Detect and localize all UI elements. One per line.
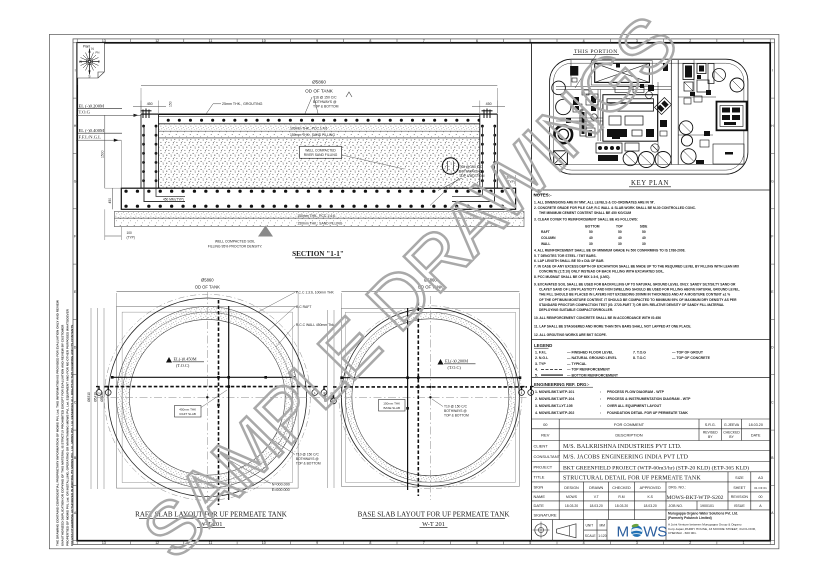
svg-text:REV: REV <box>541 433 550 438</box>
svg-text:7. T.O.G: 7. T.O.G <box>633 351 646 355</box>
svg-text:BY: BY <box>708 435 713 439</box>
svg-text:5.: 5. <box>535 373 538 377</box>
svg-text:DEPLOYING SUITABLE COMPACTOR/R: DEPLOYING SUITABLE COMPACTOR/ROLLER. <box>539 308 613 312</box>
svg-text:BY: BY <box>729 435 734 439</box>
svg-text:SIZE: SIZE <box>735 476 744 480</box>
svg-text:G.JEEVA: G.JEEVA <box>724 423 740 427</box>
svg-text:9: 9 <box>316 541 318 545</box>
svg-text:2. N.G.L: 2. N.G.L <box>535 356 549 360</box>
svg-text:18.03.20: 18.03.20 <box>615 504 628 508</box>
svg-text:ENGINEERING REF. DRG:-: ENGINEERING REF. DRG:- <box>534 382 590 387</box>
svg-text:OD OF TANK: OD OF TANK <box>305 89 334 94</box>
svg-text:(T.O.C): (T.O.C) <box>448 365 462 370</box>
svg-text:Ø5860: Ø5860 <box>201 278 214 283</box>
svg-text:Ø6310: Ø6310 <box>87 392 91 402</box>
svg-text:W: W <box>79 60 82 64</box>
svg-text:BOTHWAYS @: BOTHWAYS @ <box>313 100 337 104</box>
svg-text:3: 3 <box>636 541 638 545</box>
svg-text:TOP: TOP <box>616 225 624 229</box>
svg-text:STANDARD PROCTOR COMPACTION TE: STANDARD PROCTOR COMPACTION TEST (IS: 27… <box>539 303 724 307</box>
svg-text:T.O.G: T.O.G <box>79 110 91 115</box>
svg-text:5. T DENOTES TOR STEEL / TMT B: 5. T DENOTES TOR STEEL / TMT BARS. <box>534 254 597 258</box>
svg-text:CLAYEY SAND OF LOW PLASTICITY: CLAYEY SAND OF LOW PLASTICITY AND NON SW… <box>539 288 740 292</box>
svg-text:150mm THK., SAND FILLING: 150mm THK., SAND FILLING <box>297 222 342 226</box>
svg-text:12. ALL GROUTING WORKS ARE BKT: 12. ALL GROUTING WORKS ARE BKT SCOPE. <box>534 333 607 337</box>
svg-text:5: 5 <box>529 39 531 43</box>
svg-text:PROCESS & INSTRUMENTATION DIAG: PROCESS & INSTRUMENTATION DIAGRAM - WTP <box>607 397 691 401</box>
svg-text:00: 00 <box>759 495 763 499</box>
svg-text:50: 50 <box>618 230 622 234</box>
svg-text:7. IN CASE OF ANY EXCESS DEPTH: 7. IN CASE OF ANY EXCESS DEPTH OF EXCAVA… <box>534 264 740 268</box>
svg-text:REVISION: REVISION <box>731 495 749 499</box>
svg-text:4. ALL REINFORCEMENT SHALL BE: 4. ALL REINFORCEMENT SHALL BE OF MINIMUM… <box>534 249 685 253</box>
svg-text:40: 40 <box>618 236 622 240</box>
svg-text:450 MM (TYP): 450 MM (TYP) <box>163 198 184 202</box>
svg-text:TOP & BOTTOM: TOP & BOTTOM <box>296 462 321 466</box>
svg-text:UNAUTHORIZED DUPLICATION OR CO: UNAUTHORIZED DUPLICATION OR COPYING OF T… <box>60 324 64 546</box>
svg-text:EL(-)0.450M: EL(-)0.450M <box>174 357 197 362</box>
svg-text:SECTION "1-1": SECTION "1-1" <box>292 250 344 258</box>
svg-text:8: 8 <box>369 541 371 545</box>
svg-text:50: 50 <box>589 230 593 234</box>
svg-text:40: 40 <box>589 236 593 240</box>
svg-text:DRG. NO.:: DRG. NO.: <box>669 486 686 490</box>
svg-text:— NATURAL GROUND LEVEL: — NATURAL GROUND LEVEL <box>567 356 618 360</box>
svg-text:STRUCTURAL DETAIL FOR UF P: STRUCTURAL DETAIL FOR UF PERMEATE TANK <box>563 476 701 482</box>
svg-text:A3: A3 <box>758 476 763 480</box>
svg-text:APPROVED: APPROVED <box>640 486 661 490</box>
svg-text:8. T.O.C: 8. T.O.C <box>633 356 646 360</box>
svg-text:40: 40 <box>642 236 646 240</box>
svg-text:100mm THK., PCC 1:4:6: 100mm THK., PCC 1:4:6 <box>297 214 335 218</box>
svg-text:(TYP): (TYP) <box>127 236 135 240</box>
svg-text:(Formerly Polutech Limited): (Formerly Polutech Limited) <box>668 516 712 520</box>
svg-text:Plant: Plant <box>83 45 90 49</box>
svg-text:SCALE: SCALE <box>585 534 597 538</box>
svg-text:150: 150 <box>169 101 173 107</box>
svg-text:Ø5860: Ø5860 <box>312 80 326 85</box>
svg-text:CHENNAI - 600 001.: CHENNAI - 600 001. <box>668 531 697 535</box>
svg-text:K.S: K.S <box>647 495 653 499</box>
svg-text:R.M: R.M <box>618 495 624 499</box>
svg-text:W-T 201: W-T 201 <box>422 521 445 528</box>
svg-text:6. LAP LENGTH SHALL BE 50 x DI: 6. LAP LENGTH SHALL BE 50 x DIA OF BAR. <box>534 259 604 263</box>
svg-text:DRAWN: DRAWN <box>589 486 603 490</box>
svg-text:E=000.000: E=000.000 <box>272 488 290 492</box>
svg-text:S.R.G.: S.R.G. <box>705 423 716 427</box>
svg-text:PROPERTIES OF MOWS PVL Ltd. OR: PROPERTIES OF MOWS PVL Ltd. OR INSTALLIN… <box>65 308 69 546</box>
svg-text:10: 10 <box>262 39 266 43</box>
svg-text:4: 4 <box>583 39 585 43</box>
svg-text:CHECKED: CHECKED <box>612 486 631 490</box>
svg-text:FOUNDATION DETAIL FOR UF PERME: FOUNDATION DETAIL FOR UF PERMEATE TANK <box>607 411 688 415</box>
svg-text:13: 13 <box>102 39 106 43</box>
svg-text:FILLING 95% PROCTOR DENSITY.: FILLING 95% PROCTOR DENSITY. <box>208 245 263 249</box>
svg-text:BOTTOM: BOTTOM <box>585 225 599 229</box>
svg-text:2: 2 <box>689 39 691 43</box>
svg-text:100mm THK., PCC 1:4:6: 100mm THK., PCC 1:4:6 <box>290 126 328 130</box>
svg-text:5: 5 <box>529 541 531 545</box>
svg-text:8: 8 <box>369 39 371 43</box>
svg-text:E: E <box>98 60 100 64</box>
svg-text:30: 30 <box>642 242 646 246</box>
svg-text:1:120: 1:120 <box>598 534 606 538</box>
svg-text:WALL: WALL <box>541 242 550 246</box>
svg-text:M: M <box>617 523 629 540</box>
svg-text:DESCRIPTION: DESCRIPTION <box>615 433 642 438</box>
svg-text:OD OF TANK: OD OF TANK <box>195 285 220 290</box>
svg-text:LEGEND: LEGEND <box>534 343 552 348</box>
svg-text:SHEET: SHEET <box>733 486 746 490</box>
svg-text:MOWS: MOWS <box>566 495 578 499</box>
svg-text:2. MOWS-BKT-WTP-104: 2. MOWS-BKT-WTP-104 <box>535 397 574 401</box>
svg-text:1. F.F.L: 1. F.F.L <box>535 351 547 355</box>
svg-text:— TYPICAL: — TYPICAL <box>567 362 587 366</box>
svg-text:G: G <box>74 179 77 183</box>
svg-text:MM: MM <box>600 524 606 528</box>
svg-text:ISSUE: ISSUE <box>734 504 745 508</box>
svg-text:SIGNATURE: SIGNATURE <box>534 513 557 518</box>
svg-text:WELL COMPACTED SOIL: WELL COMPACTED SOIL <box>215 240 255 244</box>
svg-text:— FINISHED FLOOR LEVEL: — FINISHED FLOOR LEVEL <box>567 351 614 355</box>
svg-text:G: G <box>771 179 774 183</box>
svg-text:T16 @ 150 C/C: T16 @ 150 C/C <box>313 96 337 100</box>
svg-text:10: 10 <box>262 541 266 545</box>
svg-text:SIDE: SIDE <box>640 225 648 229</box>
svg-text:2. CONCRETE GRADE FOR PILE CAP: 2. CONCRETE GRADE FOR PILE CAP, R.C WALL… <box>534 206 696 210</box>
svg-text:DATE: DATE <box>534 503 545 508</box>
svg-text:18.03.20: 18.03.20 <box>565 504 578 508</box>
svg-text:25mm THK., GROUTING: 25mm THK., GROUTING <box>222 102 263 106</box>
svg-text:PROJECT: PROJECT <box>534 464 553 469</box>
svg-text:PN: PN <box>96 51 100 55</box>
svg-text:18.03.20: 18.03.20 <box>749 423 763 427</box>
svg-text:UNIT: UNIT <box>586 524 594 528</box>
svg-text::: : <box>600 411 601 415</box>
svg-text:KEY PLAN: KEY PLAN <box>631 180 669 187</box>
svg-text:1: 1 <box>743 39 745 43</box>
svg-text:NAME: NAME <box>534 494 546 499</box>
svg-text:F: F <box>74 235 76 239</box>
svg-text::: : <box>600 390 601 394</box>
svg-text:RAFT SLAB: RAFT SLAB <box>180 412 196 416</box>
svg-text:BKT GREENFIELD PROJECT (WTP-60: BKT GREENFIELD PROJECT (WTP-60m3/hr) (ST… <box>563 464 749 471</box>
svg-text:M/S. JACOBS ENGINEERING INDIA: M/S. JACOBS ENGINEERING INDIA PVT LTD <box>563 455 689 461</box>
svg-text:450mm THK: 450mm THK <box>179 407 196 411</box>
svg-text::: : <box>600 404 601 408</box>
svg-text:CONSULTANT: CONSULTANT <box>534 454 561 459</box>
svg-text:TITLE: TITLE <box>534 475 545 480</box>
svg-text:30: 30 <box>589 242 593 246</box>
svg-text:C.C RAFT: C.C RAFT <box>296 305 312 309</box>
svg-text:00: 00 <box>543 422 548 427</box>
svg-text:PROCESS FLOW DIAGRAM - WTP: PROCESS FLOW DIAGRAM - WTP <box>607 390 665 394</box>
svg-text:— TOP REINFORCEMENT: — TOP REINFORCEMENT <box>567 368 611 372</box>
svg-text:150mm THK., SAND FILLING: 150mm THK., SAND FILLING <box>290 133 335 137</box>
svg-text:JOB NO.: JOB NO. <box>669 504 683 508</box>
svg-text:450: 450 <box>486 102 492 106</box>
svg-text:EL(-)0.200M: EL(-)0.200M <box>445 359 468 364</box>
svg-text:MOWS-BKT-WTP-S202: MOWS-BKT-WTP-S202 <box>667 495 724 501</box>
svg-text:TOP & BOTTOM: TOP & BOTTOM <box>444 414 469 418</box>
svg-text:9: 9 <box>316 39 318 43</box>
svg-text::: : <box>600 397 601 401</box>
svg-text:I: I <box>772 69 773 73</box>
svg-text:OF THE OPTIMUM MOISTURE CONTEN: OF THE OPTIMUM MOISTURE CONTENT. IT SHOU… <box>539 298 737 302</box>
svg-text:DESIGN: DESIGN <box>564 486 579 490</box>
svg-text:— TOP OF CONCRETE: — TOP OF CONCRETE <box>672 356 711 360</box>
svg-text:100: 100 <box>127 231 133 235</box>
svg-text:V.T: V.T <box>594 495 599 499</box>
svg-text:— TOP OF GROUT: — TOP OF GROUT <box>672 351 704 355</box>
svg-text:2: 2 <box>689 541 691 545</box>
svg-text:11. LAP SHALL BE STAGGERED AND: 11. LAP SHALL BE STAGGERED AND MORE THAN… <box>534 325 691 329</box>
svg-text:3. TYP: 3. TYP <box>535 362 546 366</box>
svg-text:18.03.20: 18.03.20 <box>644 504 657 508</box>
svg-text:CLIENT: CLIENT <box>534 443 549 448</box>
svg-text:450: 450 <box>147 102 153 106</box>
svg-text:RIVER SAND FILLING: RIVER SAND FILLING <box>304 153 338 157</box>
svg-text:13: 13 <box>102 541 106 545</box>
svg-text:7: 7 <box>423 541 425 545</box>
svg-text:COLUMN: COLUMN <box>541 236 556 240</box>
svg-text:P.C.C 1:3:6, 100mm THK: P.C.C 1:3:6, 100mm THK <box>296 291 335 295</box>
svg-text:150mm THK: 150mm THK <box>383 401 400 405</box>
svg-text:1500: 1500 <box>100 150 104 158</box>
svg-text:1: 1 <box>743 541 745 545</box>
svg-text:18.03.20: 18.03.20 <box>590 504 603 508</box>
svg-text:THE DRAWING CONTAINS CONFIDENT: THE DRAWING CONTAINS CONFIDENTIAL PROPRI… <box>56 300 60 546</box>
svg-text:6: 6 <box>476 39 478 43</box>
svg-text:8. PCC MUDMAT SHALL BE OF MIX: 8. PCC MUDMAT SHALL BE OF MIX 1:3:6, (LM… <box>534 275 610 279</box>
svg-text:T10 @ 150 C/C: T10 @ 150 C/C <box>444 405 468 409</box>
svg-text:F: F <box>771 235 773 239</box>
svg-text:THE MINIMUM CEMENT CONTENT SHA: THE MINIMUM CEMENT CONTENT SHALL BE 450 … <box>539 211 631 215</box>
svg-text:7: 7 <box>423 39 425 43</box>
svg-text:BASE SLAB: BASE SLAB <box>383 406 400 410</box>
svg-text:BASE SLAB LAYOUT FOR UF PERMEA: BASE SLAB LAYOUT FOR UF PERMEATE TANK <box>358 511 510 519</box>
svg-text:I: I <box>75 69 76 73</box>
svg-text:DATE: DATE <box>751 434 761 438</box>
svg-text:9. EXCAVATED SOIL SHALL BE USE: 9. EXCAVATED SOIL SHALL BE USED FOR BACK… <box>534 283 736 287</box>
svg-text:30: 30 <box>618 242 622 246</box>
svg-text:1900101: 1900101 <box>700 504 714 508</box>
svg-text:Ø5410: Ø5410 <box>94 392 98 402</box>
svg-text:11: 11 <box>209 39 213 43</box>
svg-text:M/S. BALKRISHNA INDUSTRIES PVT: M/S. BALKRISHNA INDUSTRIES PVT LTD. <box>563 444 682 450</box>
svg-text:EL (-)0.200M: EL (-)0.200M <box>79 103 105 108</box>
svg-text:BOTHWAYS @: BOTHWAYS @ <box>444 409 467 413</box>
svg-text:1. MOWS-BKT-WTP-101: 1. MOWS-BKT-WTP-101 <box>535 390 574 394</box>
svg-text:S: S <box>88 75 90 79</box>
svg-text:(T.O.C): (T.O.C) <box>176 363 190 368</box>
svg-text:EL (-)0.400M: EL (-)0.400M <box>79 128 105 133</box>
svg-text:FOR COMMENT: FOR COMMENT <box>614 422 645 427</box>
svg-text:F.F.L/N.G.L: F.F.L/N.G.L <box>79 134 102 139</box>
svg-text:OVER ALL EQUIPMENT LAYOUT: OVER ALL EQUIPMENT LAYOUT <box>607 404 662 408</box>
svg-text:6: 6 <box>476 541 478 545</box>
svg-text:10. ALL REINFORCEMENT CONCRETE: 10. ALL REINFORCEMENT CONCRETE SHALL BE … <box>534 316 661 320</box>
svg-text:4: 4 <box>583 541 585 545</box>
svg-text:450: 450 <box>108 198 112 204</box>
svg-text:12: 12 <box>155 39 159 43</box>
svg-text:WS: WS <box>643 523 667 540</box>
svg-text:WELL COMPACTED: WELL COMPACTED <box>305 148 336 152</box>
svg-text:3. MOWS-BKT-LYT-105: 3. MOWS-BKT-LYT-105 <box>535 404 573 408</box>
svg-text:THE FILL SHOULD BE PLACED IN L: THE FILL SHOULD BE PLACED IN LAYERS NOT … <box>539 293 730 297</box>
svg-text:SIGN: SIGN <box>534 485 544 490</box>
svg-text:50: 50 <box>642 230 646 234</box>
svg-text:4. MOWS-BKT-WTP-202: 4. MOWS-BKT-WTP-202 <box>535 411 574 415</box>
svg-text:CONCRETE (1:5:10) ONLY INSTEAD: CONCRETE (1:5:10) ONLY INSTEAD OF BACK F… <box>539 270 664 274</box>
svg-text:— BOTTOM REINFORCEMENT: — BOTTOM REINFORCEMENT <box>567 373 619 377</box>
svg-text:3. CLEAR COVER TO REINFORCEMEN: 3. CLEAR COVER TO REINFORCEMENT SHALL BE… <box>534 217 638 221</box>
svg-text:4.: 4. <box>535 368 538 372</box>
svg-text:RAFT: RAFT <box>541 230 550 234</box>
svg-text:UNLESS OTHERWISE AUTHORIZED IN: UNLESS OTHERWISE AUTHORIZED IN WRITING B… <box>70 325 74 546</box>
svg-text:01 OF 01: 01 OF 01 <box>754 486 767 490</box>
